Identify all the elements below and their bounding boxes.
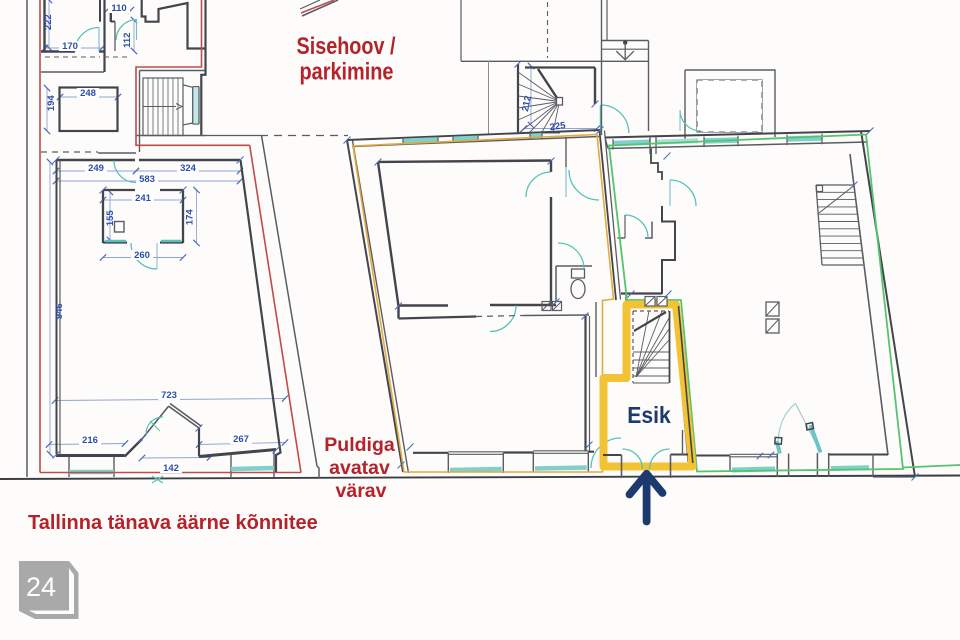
svg-text:241: 241	[135, 193, 152, 204]
svg-text:225: 225	[549, 120, 567, 133]
svg-text:583: 583	[139, 174, 155, 185]
svg-text:723: 723	[161, 390, 177, 401]
svg-text:112: 112	[122, 33, 133, 48]
svg-text:946: 946	[54, 303, 65, 319]
svg-text:110: 110	[111, 3, 126, 14]
svg-text:216: 216	[82, 435, 98, 446]
svg-text:170: 170	[62, 41, 78, 52]
svg-text:249: 249	[88, 163, 104, 174]
svg-text:324: 324	[180, 163, 197, 174]
svg-text:Esik: Esik	[627, 402, 671, 428]
svg-text:24: 24	[26, 572, 56, 602]
svg-text:174: 174	[185, 209, 196, 226]
svg-text:parkimine: parkimine	[300, 59, 394, 86]
svg-text:Tallinna tänava äärne kõnnitee: Tallinna tänava äärne kõnnitee	[28, 512, 318, 534]
svg-text:260: 260	[134, 250, 150, 261]
svg-text:Puldiga: Puldiga	[324, 434, 395, 456]
svg-text:avatav: avatav	[329, 457, 390, 479]
svg-text:248: 248	[80, 88, 96, 99]
svg-text:värav: värav	[336, 480, 387, 502]
svg-text:222: 222	[43, 14, 54, 30]
svg-text:Sisehoov /: Sisehoov /	[297, 33, 396, 60]
svg-text:155: 155	[105, 210, 116, 227]
svg-text:194: 194	[46, 95, 57, 112]
svg-text:267: 267	[233, 434, 249, 445]
svg-text:142: 142	[163, 463, 179, 474]
